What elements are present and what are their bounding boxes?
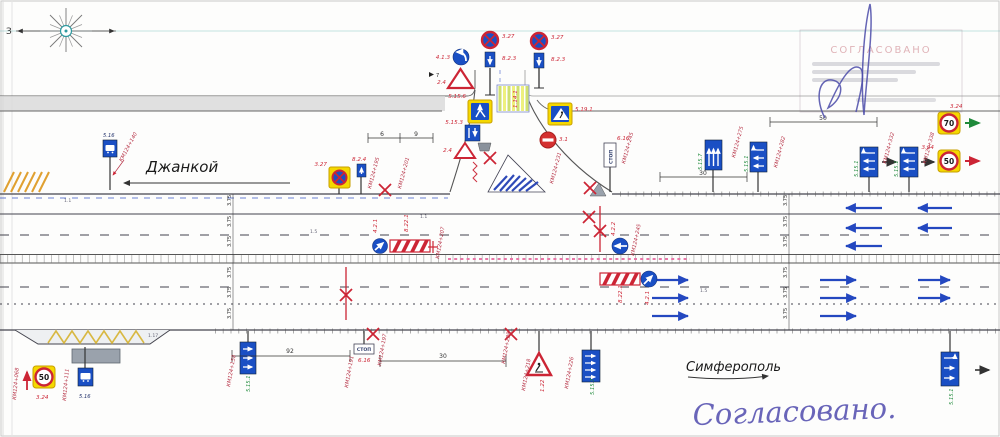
lane-width: 3.75 [227, 308, 233, 319]
sign-plate-code: 8.2.4 [352, 157, 367, 163]
sign-code: 5.19.1 [575, 107, 593, 113]
pedestrian-crosswalk: 1.14.1 [497, 85, 529, 112]
km-label: КМ124+201 [397, 157, 411, 190]
km-label: КМ124+245 [630, 223, 643, 257]
sign-code: 3.27 [502, 34, 515, 40]
dimension-value: 9 [414, 131, 418, 138]
sign-no-stopping-b: 3.27 8.2.3 [531, 33, 566, 88]
sign-no-stopping-left: 3.27 8.2.4 [315, 157, 367, 194]
lane-width: 3.75 [227, 216, 233, 227]
sign-code: 3.27 [551, 35, 564, 41]
median-cluster-left: 4.2.1 8.22.1 [373, 214, 439, 253]
km-label: КМ124+231 [549, 152, 563, 185]
sign-speed-50-bottom: 50 3.24 [27, 366, 55, 401]
sign-code: 4.2.1 [373, 219, 379, 233]
sign-code: 5.15.7 [698, 153, 704, 170]
sign-plate-code: 8.2.3 [502, 56, 517, 62]
sign-code: 4.2.2 [611, 221, 617, 236]
sign-lanes-2: 5.15.1 [744, 142, 767, 192]
sign-give-way-top: 2.4 [437, 69, 473, 88]
stop-sign-text: СТОП [357, 347, 371, 353]
km-label: КМ124+111 [62, 368, 71, 401]
km-label: КМ124+226 [564, 356, 576, 390]
dimension-value: 30 [699, 170, 707, 177]
dimension-value: 30 [439, 353, 447, 360]
sign-no-entry: 3.1 [540, 132, 568, 148]
lane-width: 3.75 [783, 308, 789, 319]
roadside-hatch [4, 172, 49, 192]
sign-code: 8.22.1 [404, 214, 410, 232]
zigzag-marking-label: 1.17 [148, 333, 158, 339]
sign-lanes-bottom-right: 5.15.1 [941, 331, 989, 405]
speed-value: 70 [944, 119, 954, 128]
km-label: КМ124+158 [226, 354, 238, 388]
sign-code: 8.22.1 [618, 285, 624, 303]
sign-code: 3.24 [950, 104, 963, 110]
dimension-value: 6 [380, 131, 384, 138]
sign-code: 3.27 [315, 162, 328, 168]
road-signage-scheme: З 1.14.1 [0, 0, 1000, 437]
dimension-value: 92 [286, 348, 294, 355]
bus-bay: 1.17 [15, 330, 170, 363]
sign-code: 5.15.1 [894, 161, 900, 178]
lane-width: 3.75 [227, 195, 233, 206]
stamp-title: СОГЛАСОВАНО [830, 45, 931, 56]
destination-right-label: Симферополь [686, 360, 781, 375]
sign-code: 3.24 [36, 395, 49, 401]
signature [819, 4, 871, 118]
sign-lanes-bottom-mid: 5.15.7 [582, 331, 600, 395]
km-label: КМ124+068 [12, 367, 21, 400]
sign-code: 4.1.3 [436, 55, 451, 61]
sign-code: 1.22 [540, 379, 546, 392]
marking-label: 1.1 [420, 214, 427, 220]
lane-width: 3.75 [783, 216, 789, 227]
lane-width: 3.75 [227, 236, 233, 247]
sign-code: 5.15.3 [445, 120, 463, 126]
sign-speed-70: 70 3.24 [938, 104, 979, 134]
bus-shelter [72, 349, 120, 363]
traffic-light-symbol [478, 143, 491, 151]
sign-code: 5.15.1 [949, 389, 955, 406]
median [0, 255, 1000, 264]
marking-label: 1.1 [64, 198, 71, 204]
lane-width: 3.75 [227, 267, 233, 278]
compass-west-label: З [6, 27, 12, 37]
sign-lanes-1: 5.15.7 [698, 140, 722, 192]
lane-width: 3.75 [783, 236, 789, 247]
handwritten-approval: Согласовано. [692, 391, 897, 432]
sign-code: 5.15.7 [590, 378, 596, 395]
sign-code: 5.15.6 [448, 94, 466, 100]
km-label: КМ124+282 [773, 136, 787, 169]
destination-left-label: Джанкой [145, 158, 218, 176]
sign-code: 2.4 [437, 80, 446, 86]
sign-code: 5.15.1 [246, 376, 252, 393]
km-label: КМ124+332 [882, 132, 896, 165]
sign-code: 5.16 [103, 133, 115, 139]
speed-value: 50 [944, 157, 954, 166]
barrier-stripes [600, 273, 640, 285]
km-label: КМ124+140 [118, 131, 139, 163]
lane-width: 3.75 [783, 267, 789, 278]
sign-ped-crossing: 5.19.1 [548, 103, 593, 125]
direction-dzhankoy: Джанкой [124, 158, 290, 183]
sign-code: 5.16 [79, 394, 91, 400]
sign-code: 4.2.1 [645, 291, 651, 305]
lane-width: 3.75 [783, 287, 789, 298]
km-label: КМ124+191 [344, 355, 356, 388]
km-label: КМ124+275 [731, 125, 745, 158]
lane-direction-arrows [652, 208, 952, 316]
note-arrow-icon [429, 72, 434, 77]
stop-sign-text: СТОП [609, 150, 615, 164]
marking-label: 1.5 [310, 229, 317, 235]
lane-width: 3.75 [783, 195, 789, 206]
sign-code: 5.15.1 [854, 161, 860, 178]
sign-note: 7 [436, 73, 439, 79]
speed-value: 50 [39, 373, 49, 382]
marking-label: 1.5 [700, 288, 707, 294]
sign-code: 3.1 [559, 137, 568, 143]
barrier-stripes [390, 240, 430, 252]
sign-give-way-side: 2.4 [443, 143, 475, 158]
compass-rose: З [6, 8, 116, 52]
sign-lane-merge: 5.15.6 [448, 94, 492, 123]
sign-lanes-bottom-left: 5.15.1 [240, 331, 256, 392]
scheme-canvas: З 1.14.1 [0, 0, 1000, 437]
sign-code: 5.15.1 [744, 156, 750, 173]
sign-code: 6.16 [358, 358, 371, 364]
km-label: КМ124+228 [501, 331, 513, 365]
direction-simferopol: Симферополь [686, 360, 781, 379]
sign-code: 2.4 [443, 148, 452, 154]
channelizing-island [488, 155, 545, 192]
lane-width: 3.75 [227, 287, 233, 298]
zebra-marking-label: 1.14.1 [513, 90, 519, 108]
dimension-value: 50 [819, 115, 827, 122]
sign-plate-code: 8.2.3 [551, 57, 566, 63]
approval-stamp: СОГЛАСОВАНО [800, 30, 962, 112]
